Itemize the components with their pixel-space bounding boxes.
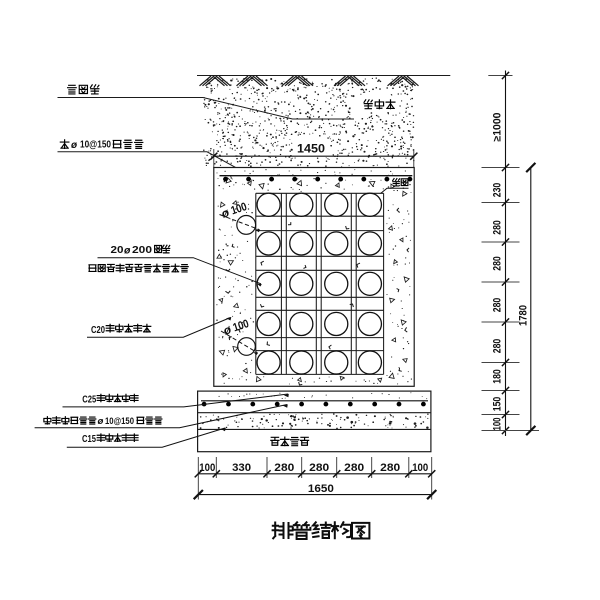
svg-text:280: 280 — [492, 256, 504, 271]
svg-text:150: 150 — [492, 397, 504, 412]
svg-text:20: 20 — [111, 244, 124, 256]
svg-text:≥1000: ≥1000 — [492, 113, 504, 142]
svg-text:1650: 1650 — [308, 483, 334, 495]
svg-text:280: 280 — [344, 462, 364, 474]
svg-text:280: 280 — [274, 462, 294, 474]
svg-text:1450: 1450 — [297, 144, 325, 156]
svg-text:ø: ø — [124, 244, 131, 256]
svg-text:280: 280 — [492, 298, 504, 313]
svg-text:C25: C25 — [82, 394, 96, 405]
svg-text:C15: C15 — [82, 434, 96, 445]
svg-text:ø: ø — [71, 140, 77, 151]
svg-text:10@150: 10@150 — [80, 140, 111, 151]
svg-text:280: 280 — [380, 462, 400, 474]
svg-text:100: 100 — [199, 462, 215, 474]
svg-text:100: 100 — [492, 418, 504, 431]
svg-text:10@150: 10@150 — [105, 415, 134, 426]
svg-text:180: 180 — [492, 369, 504, 384]
svg-text:330: 330 — [232, 462, 251, 474]
svg-text:ø: ø — [98, 416, 104, 427]
svg-text:280: 280 — [309, 462, 329, 474]
svg-text:100: 100 — [412, 462, 428, 474]
svg-text:1780: 1780 — [518, 305, 530, 326]
svg-text:200: 200 — [132, 244, 152, 256]
svg-text:280: 280 — [492, 220, 504, 235]
svg-text:280: 280 — [492, 339, 504, 354]
svg-text:C20: C20 — [91, 324, 105, 336]
svg-text:230: 230 — [492, 183, 504, 198]
